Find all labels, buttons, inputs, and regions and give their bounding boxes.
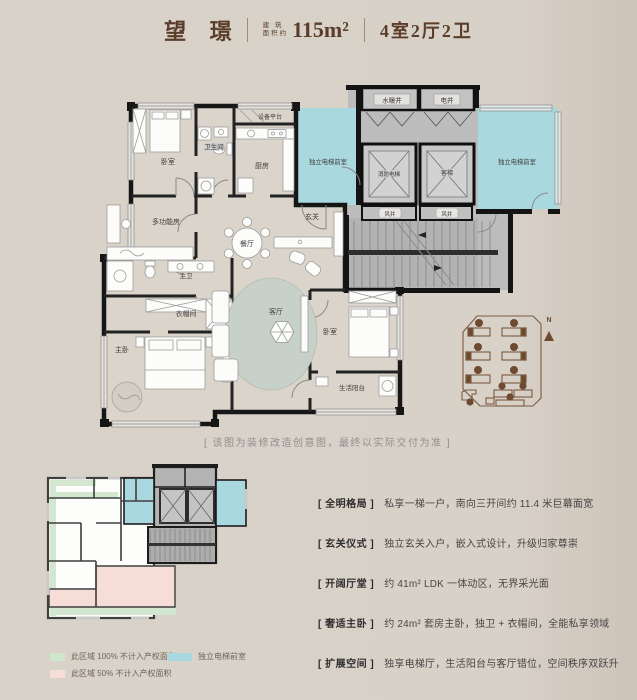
site-buildings xyxy=(462,328,532,406)
north-label: N xyxy=(546,317,551,324)
feature-tag: [ 奢适主卧 ] xyxy=(318,615,374,630)
key-plan-stairs xyxy=(148,527,216,563)
label-life-balcony: 生活阳台 xyxy=(339,383,365,392)
label-passenger-elevator: 客梯 xyxy=(441,169,453,177)
label-fire-elevator: 消防电梯 xyxy=(378,170,401,178)
legend-swatch-pink xyxy=(50,670,65,678)
marketing-floorplan-page: 望 璟 建 筑 面积约 115m² 4室2厅2卫 xyxy=(0,0,637,700)
feature-row: [ 全明格局 ] 私享一梯一户，南向三开间约 11.4 米巨幕面宽 xyxy=(318,495,633,510)
label-master-bath: 主卫 xyxy=(180,271,194,280)
area-prefix-line1: 建 筑 xyxy=(263,22,289,30)
label-kitchen: 厨房 xyxy=(255,161,269,170)
feature-desc: 独享电梯厅，生活阳台与客厅错位，空间秩序双跃升 xyxy=(384,655,619,670)
legend-swatch-teal xyxy=(168,653,192,661)
feature-desc: 私享一梯一户，南向三开间约 11.4 米巨幕面宽 xyxy=(384,495,593,510)
feature-row: [ 开阔厅堂 ] 约 41m² LDK 一体动区，无界采光面 xyxy=(318,575,633,590)
feature-tag: [ 开阔厅堂 ] xyxy=(318,575,374,590)
north-arrow: N xyxy=(544,317,554,341)
header-divider xyxy=(364,18,365,42)
feature-row: [ 奢适主卧 ] 约 24m² 套房主卧，独卫 + 衣帽间，全能私享领域 xyxy=(318,615,633,630)
feature-desc: 约 41m² LDK 一体动区，无界采光面 xyxy=(384,575,549,590)
legend-item-green: 此区域 100% 不计入产权面积 xyxy=(50,651,176,662)
area-value: 115m² xyxy=(292,17,349,43)
header: 望 璟 建 筑 面积约 115m² 4室2厅2卫 xyxy=(0,14,637,46)
legend-label-teal: 独立电梯前室 xyxy=(198,651,246,662)
feature-row: [ 扩展空间 ] 独享电梯厅，生活阳台与客厅错位，空间秩序双跃升 xyxy=(318,655,633,670)
project-name: 望 璟 xyxy=(164,14,241,46)
label-electric-shaft: 电井 xyxy=(441,96,455,105)
legend-label-pink: 此区域 50% 不计入产权面积 xyxy=(71,668,171,679)
key-plan xyxy=(36,461,294,627)
legend-item-pink: 此区域 50% 不计入产权面积 xyxy=(50,668,171,679)
label-lobby-right: 独立电梯前室 xyxy=(498,157,536,166)
label-foyer: 玄关 xyxy=(305,212,319,221)
feature-tag: [ 扩展空间 ] xyxy=(318,655,374,670)
disclaimer-caption: [ 该图为装修改造创意图，最终以实际交付为准 ] xyxy=(95,434,560,449)
label-living: 客厅 xyxy=(269,307,283,316)
main-floorplan: 卧室 卫生间 设备平台 厨房 多功能房 主卫 衣帽间 主卧 餐厅 玄关 客厅 卧… xyxy=(88,84,564,434)
area-spec: 建 筑 面积约 115m² xyxy=(263,17,349,43)
legend-item-teal: 独立电梯前室 xyxy=(168,651,246,662)
feature-desc: 约 24m² 套房主卧，独卫 + 衣帽间，全能私享领域 xyxy=(384,615,609,630)
label-equipment-platform: 设备平台 xyxy=(258,113,282,121)
label-master-bedroom: 主卧 xyxy=(115,345,129,354)
feature-list: [ 全明格局 ] 私享一梯一户，南向三开间约 11.4 米巨幕面宽 [ 玄关仪式… xyxy=(318,495,633,695)
layout-spec: 4室2厅2卫 xyxy=(380,17,473,43)
label-multifunction: 多功能房 xyxy=(152,217,180,226)
header-divider xyxy=(247,18,248,42)
feature-desc: 独立玄关入户，嵌入式设计，升级归家尊崇 xyxy=(384,535,578,550)
legend-label-green: 此区域 100% 不计入产权面积 xyxy=(71,651,176,662)
legend-swatch-green xyxy=(50,653,65,661)
label-lobby-left: 独立电梯前室 xyxy=(309,157,347,166)
feature-tag: [ 玄关仪式 ] xyxy=(318,535,374,550)
label-dining: 餐厅 xyxy=(240,239,254,248)
label-bedroom-bottom: 卧室 xyxy=(323,327,337,336)
site-building-markers xyxy=(466,319,526,406)
label-water-shaft: 水暖井 xyxy=(382,96,402,105)
site-plan: N xyxy=(462,316,554,406)
area-prefix: 建 筑 面积约 xyxy=(263,22,289,39)
feature-row: [ 玄关仪式 ] 独立玄关入户，嵌入式设计，升级归家尊崇 xyxy=(318,535,633,550)
label-wind-shaft-left: 风井 xyxy=(384,210,396,218)
feature-tag: [ 全明格局 ] xyxy=(318,495,374,510)
label-bathroom: 卫生间 xyxy=(204,142,224,151)
wind-shafts xyxy=(362,206,472,220)
label-bedroom-top: 卧室 xyxy=(161,157,175,166)
label-wind-shaft-right: 风井 xyxy=(441,210,453,218)
area-prefix-line2: 面积约 xyxy=(263,30,289,38)
label-cloakroom: 衣帽间 xyxy=(176,309,197,318)
